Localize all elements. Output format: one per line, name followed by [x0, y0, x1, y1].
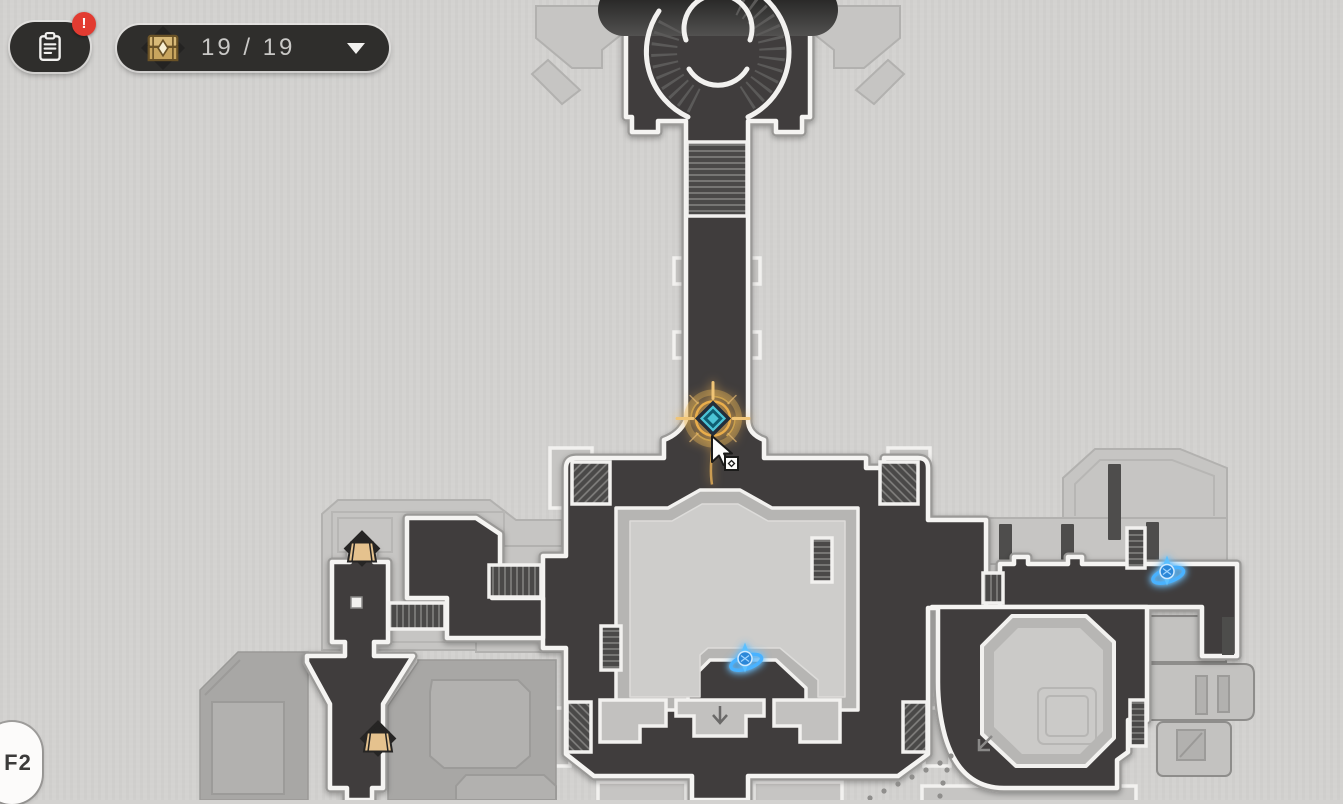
- octagon-room: [982, 616, 1114, 766]
- space-anchor-icon[interactable]: [1139, 544, 1195, 605]
- space-anchor-art: [1139, 544, 1195, 600]
- cursor-art: [709, 434, 745, 474]
- chest-count-label: 19 / 19: [201, 34, 347, 62]
- shop-bag-icon[interactable]: [340, 527, 384, 576]
- notification-badge: !: [72, 12, 96, 36]
- mouse-cursor: [709, 434, 745, 479]
- caret-down-icon: [347, 43, 365, 54]
- clipboard-icon: [37, 32, 63, 62]
- space-anchor-icon[interactable]: [717, 631, 773, 692]
- tasks-button[interactable]: !: [10, 22, 90, 72]
- floor-label: F2: [0, 750, 32, 776]
- game-map-screen: ! 19 / 19 F2: [0, 0, 1343, 800]
- shop-bag-icon[interactable]: [356, 717, 400, 766]
- floor-indicator[interactable]: F2: [0, 722, 42, 804]
- shop-bag-art: [356, 717, 400, 761]
- treasure-chest-icon: [141, 26, 185, 70]
- chest-counter-dropdown[interactable]: 19 / 19: [117, 25, 389, 71]
- shop-bag-art: [340, 527, 384, 571]
- space-anchor-art: [717, 631, 773, 687]
